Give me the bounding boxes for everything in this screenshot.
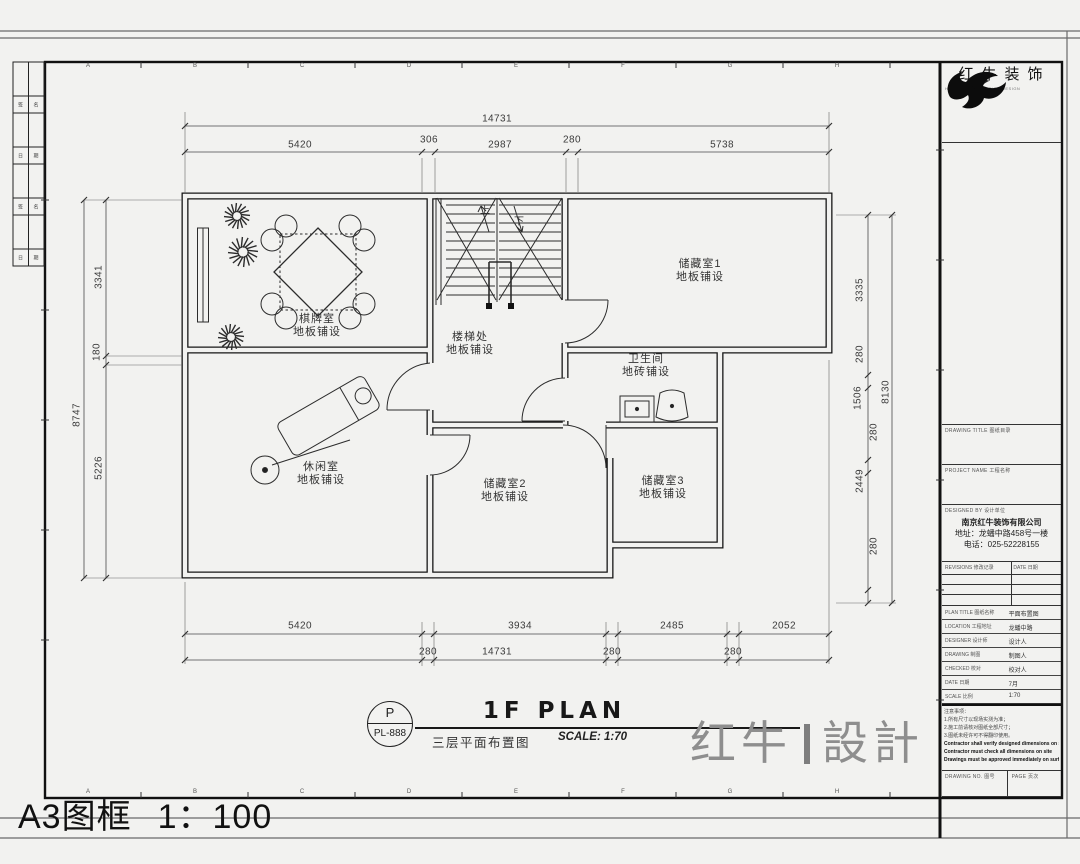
countersign-strip [13,62,44,266]
notes-cell: 注意事项：1.所有尺寸以现场实测为准；2.施工前请核对图纸全部尺寸；3.图纸未经… [942,704,1061,771]
grid-letter: E [514,789,518,795]
dimension-label: 5420 [288,140,312,151]
bull-logo-icon [942,67,1016,111]
dimension-label: 5420 [288,621,312,632]
title-block-field-row: SCALE 比例1:70 [942,690,1061,704]
room-label: 楼梯处地板铺设 [446,331,494,356]
dimension-label: 280 [419,647,437,658]
plan-scale-note: SCALE: 1:70 [558,731,627,743]
grid-letter: G [728,63,733,69]
doors [387,300,608,475]
title-block-field-row: DESIGNER 设计师设计人 [942,634,1061,648]
dimension-label: 3341 [94,265,105,289]
title-block-field-row: PLAN TITLE 图纸名称平面布置图 [942,606,1061,620]
company-cell: DESIGNED BY 设计单位 南京红牛装饰有限公司 地址：龙蟠中路458号一… [942,505,1061,562]
grid-letter: D [407,63,411,69]
note-line: 3.图纸未经许可不得翻印使用。 [944,732,1059,740]
dimension-label: 8130 [881,380,892,404]
stair-up-label: 上 [480,202,490,217]
grid-letter: F [621,63,625,69]
border-ticks [41,62,944,798]
revisions-table: REVISIONS 修改记录 DATE 日期 [942,562,1061,606]
grid-letter: H [835,63,839,69]
dimension-label: 2052 [772,621,796,632]
countersign-cell: 名 [33,101,38,108]
countersign-cell: 期 [33,254,38,261]
logo-cell: 红牛装饰 HONGNIU DECORATION DESIGN [942,63,1061,143]
dimension-label: 3934 [508,621,532,632]
company-phone: 电话：025-52228155 [942,539,1061,550]
stair-diagonals [437,198,562,300]
title-block-field-row: DRAWING 制图制图人 [942,648,1061,662]
grid-letter: B [193,63,197,69]
note-line: 注意事项： [944,708,1059,716]
watermark-bar-icon [804,724,810,764]
project-name-label: PROJECT NAME 工程名称 [942,465,1061,474]
toilet [656,390,688,421]
note-line: 1.所有尺寸以现场实测为准； [944,716,1059,724]
dimension-label: 5226 [94,456,105,480]
dimension-label: 14731 [482,647,512,658]
title-block-field-row: CHECKED 校对校对人 [942,662,1061,676]
plan-title: 1F PLAN [447,698,662,724]
mahjong-table [261,215,375,329]
room-label: 储藏室2地板铺设 [481,478,529,503]
grid-letter: H [835,789,839,795]
page-label: PAGE 页次 [1009,771,1039,780]
title-block: 红牛装饰 HONGNIU DECORATION DESIGN DRAWING T… [942,63,1061,797]
title-block-field-row: DATE 日期7月 [942,676,1061,690]
countersign-cell: 期 [33,152,38,159]
countersign-cell: 日 [18,254,23,261]
dimension-label: 14731 [482,114,512,125]
title-block-field-row: LOCATION 工程地址龙蟠中路 [942,620,1061,634]
room-label: 储藏室3地板铺设 [639,475,687,500]
plan-tag: P PL-888 [367,701,413,747]
brand-watermark: 红牛設計 [690,707,924,773]
frame-label: A3图框1：100 [18,789,272,838]
countersign-cell: 签 [18,203,23,210]
dimension-label: 2987 [488,140,512,151]
countersign-cell: 签 [18,101,23,108]
watermark-left: 红牛 [690,716,792,770]
dimension-label: 280 [563,135,581,146]
grid-letter: C [300,63,304,69]
revisions-label: REVISIONS 修改记录 [945,564,994,571]
dimension-label: 3335 [855,278,866,302]
drawing-sheet: 1473154203062987280573887473341180522633… [0,0,1080,864]
dimension-label: 280 [603,647,621,658]
plan-details [198,198,689,484]
grid-letter: C [300,789,304,795]
frame-name: A3图框 [18,798,132,836]
note-line: Drawings must be approved immediately on… [944,756,1059,764]
dimension-label: 306 [420,135,438,146]
room-label: 卫生间地砖铺设 [622,353,670,378]
drawing-title-cell: DRAWING TITLE 图纸目录 [942,425,1061,465]
company-name: 南京红牛装饰有限公司 [942,517,1061,528]
plan-tag-letter: P [368,702,412,724]
project-name-cell: PROJECT NAME 工程名称 [942,465,1061,505]
countersign-cell: 名 [33,203,38,210]
drawing-number-cell: DRAWING NO. 图号 PAGE 页次 [942,771,1061,797]
stair-handrail [489,262,511,306]
stair-down-label: 下 [514,213,524,228]
dimension-label: 280 [869,423,880,441]
note-line: 2.施工前请核对图纸全部尺寸； [944,724,1059,732]
drawing-number-label: DRAWING NO. 图号 [942,771,995,780]
dimension-label: 2485 [660,621,684,632]
plants [218,203,258,350]
note-line: Contractor shall verify designed dimensi… [944,740,1059,748]
room-label: 休闲室地板铺设 [297,461,345,486]
bathroom-sink [620,396,654,422]
dimension-label: 8747 [72,403,83,427]
dimension-label: 280 [855,345,866,363]
drawing-title-label: DRAWING TITLE 图纸目录 [942,425,1061,434]
grid-letter: D [407,789,411,795]
room-label: 储藏室1地板铺设 [676,258,724,283]
dimension-label: 5738 [710,140,734,151]
countersign-cell: 日 [18,152,23,159]
revisions-date-label: DATE 日期 [1013,564,1037,571]
dimension-label: 280 [724,647,742,658]
company-address: 地址：龙蟠中路458号一楼 [942,528,1061,539]
note-line: Contractor must check all dimensions on … [944,748,1059,756]
dimension-label: 1506 [853,386,864,410]
plan-subtitle: 三层平面布置图 [432,732,530,751]
stair-treads [446,205,561,295]
grid-letter: E [514,63,518,69]
room-label: 棋牌室地板铺设 [293,313,341,338]
watermark-right: 設計 [822,716,924,770]
title-block-blank-cell [942,143,1061,425]
dimension-label: 180 [92,343,103,361]
walls [185,196,829,575]
title-block-fields: PLAN TITLE 图纸名称平面布置图LOCATION 工程地址龙蟠中路DES… [942,606,1061,704]
dimension-label: 280 [869,537,880,555]
company-label: DESIGNED BY 设计单位 [942,505,1061,514]
dimension-label: 2449 [855,469,866,493]
grid-letter: G [728,789,733,795]
grid-letter: A [86,63,90,69]
frame-scale: 1：100 [158,798,273,836]
grid-letter: F [621,789,625,795]
plan-tag-code: PL-888 [368,724,412,744]
